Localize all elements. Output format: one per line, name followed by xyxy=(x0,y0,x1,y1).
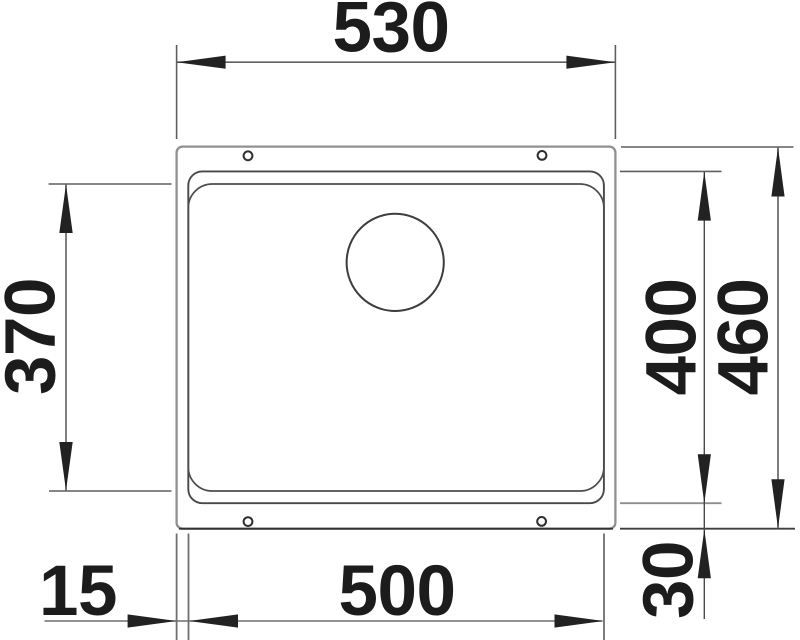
svg-text:370: 370 xyxy=(0,278,71,395)
svg-text:500: 500 xyxy=(339,552,456,631)
svg-text:460: 460 xyxy=(704,279,783,396)
svg-text:400: 400 xyxy=(633,279,712,396)
svg-text:30: 30 xyxy=(630,541,709,619)
svg-text:530: 530 xyxy=(333,0,450,67)
svg-text:15: 15 xyxy=(39,552,117,631)
